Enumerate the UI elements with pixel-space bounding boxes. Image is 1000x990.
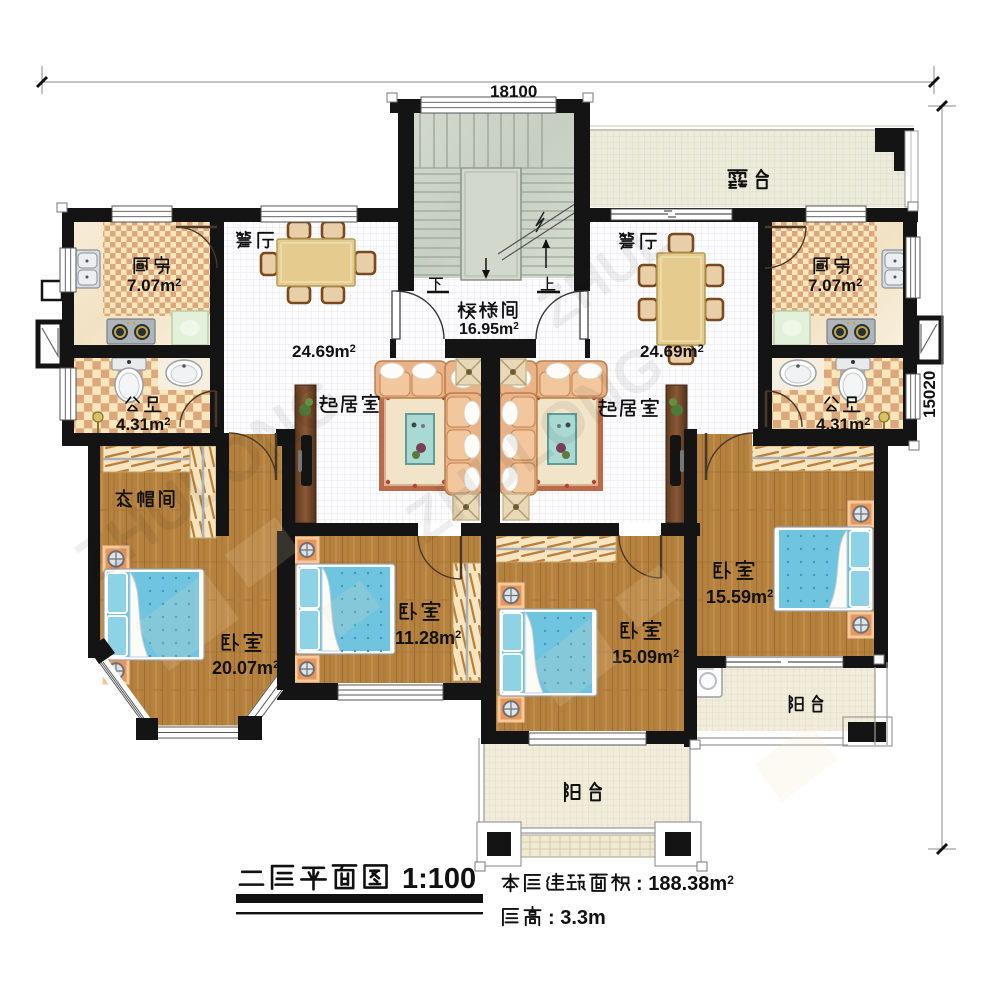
svg-text:7.07m2: 7.07m2 [808,276,862,295]
svg-text:24.69m2: 24.69m2 [292,342,356,361]
svg-text:7.07m2: 7.07m2 [127,276,181,295]
svg-text:15.59m2: 15.59m2 [706,587,773,607]
svg-text:16.95m2: 16.95m2 [459,321,519,338]
svg-text:1:100: 1:100 [402,863,476,895]
svg-text:4.31m2: 4.31m2 [816,415,870,434]
svg-text:15020: 15020 [920,371,939,418]
svg-text:20.07m2: 20.07m2 [212,658,279,678]
svg-text:: 3.3m: : 3.3m [544,907,606,929]
svg-text:18100: 18100 [490,82,537,101]
svg-text:4.31m2: 4.31m2 [116,415,170,434]
svg-text:15.09m2: 15.09m2 [612,647,679,667]
svg-text:11.28m2: 11.28m2 [395,628,461,648]
svg-text:: 188.38m2: : 188.38m2 [632,873,734,895]
